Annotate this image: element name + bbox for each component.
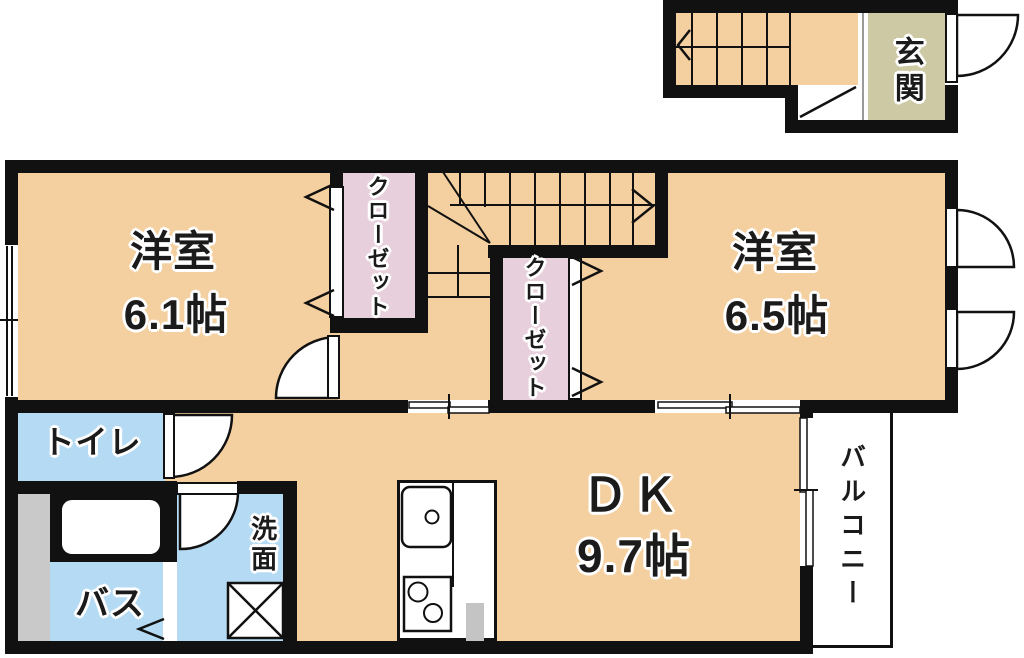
wall — [330, 318, 428, 333]
wall — [283, 481, 297, 654]
wall — [800, 410, 813, 418]
window-gap-right2 — [945, 310, 958, 369]
wall — [945, 160, 958, 208]
window-arc-right2 — [957, 312, 1014, 369]
wall — [945, 0, 958, 15]
label-toilet: トイレ — [42, 426, 141, 460]
balcony-door-gap — [800, 418, 813, 566]
bath-door-gap — [163, 562, 177, 641]
floor-plan: 洋室 6.1帖 洋室 6.5帖 ＤＫ 9.7帖 クローゼット クローゼット トイ… — [0, 0, 1024, 658]
label-balcony: バルコニー — [837, 443, 864, 613]
wall — [655, 160, 668, 258]
sliding-door-gap1 — [408, 400, 488, 413]
wall — [945, 267, 958, 310]
wall — [5, 397, 18, 654]
label-closet2: クローゼット — [522, 256, 545, 400]
label-dk-name: ＤＫ — [582, 471, 682, 519]
sliding-door-gap2 — [655, 400, 800, 413]
bathtub — [62, 500, 160, 554]
door-arc-entrance — [957, 15, 1018, 76]
label-room1-name: 洋室 — [130, 230, 216, 274]
label-closet1: クローゼット — [365, 175, 388, 319]
wall — [488, 400, 655, 413]
closet2-door — [568, 257, 582, 400]
kitchen-counter — [397, 480, 497, 641]
pipe-space — [18, 494, 50, 641]
closet1-door — [329, 186, 344, 318]
wall — [663, 85, 798, 98]
window-gap-right1 — [945, 208, 958, 267]
wall — [785, 120, 958, 133]
wall — [5, 481, 177, 494]
label-bath: バス — [75, 587, 145, 623]
wall — [800, 400, 958, 413]
wall — [490, 245, 503, 413]
label-washroom: 洗面 — [248, 515, 275, 575]
window-arc-right1 — [957, 210, 1014, 267]
wall — [5, 160, 18, 245]
wall — [237, 481, 283, 494]
wall — [415, 172, 428, 333]
wall — [800, 566, 813, 654]
label-entrance: 玄関 — [890, 36, 922, 108]
wall — [663, 0, 676, 98]
window-gap-left — [5, 245, 18, 397]
wall — [5, 641, 813, 654]
entry-porch — [798, 85, 858, 120]
label-room2-size: 6.5帖 — [725, 294, 829, 338]
label-room2-name: 洋室 — [732, 231, 818, 275]
wall — [945, 85, 958, 133]
wall — [5, 400, 408, 413]
wall — [330, 172, 343, 186]
floor-entry-hall — [676, 13, 858, 85]
wall — [663, 0, 958, 13]
label-dk-size: 9.7帖 — [577, 532, 691, 580]
wall — [5, 160, 958, 173]
entry-step-strip — [858, 13, 868, 120]
entrance-door-gap — [945, 15, 958, 85]
label-room1-size: 6.1帖 — [124, 293, 228, 337]
